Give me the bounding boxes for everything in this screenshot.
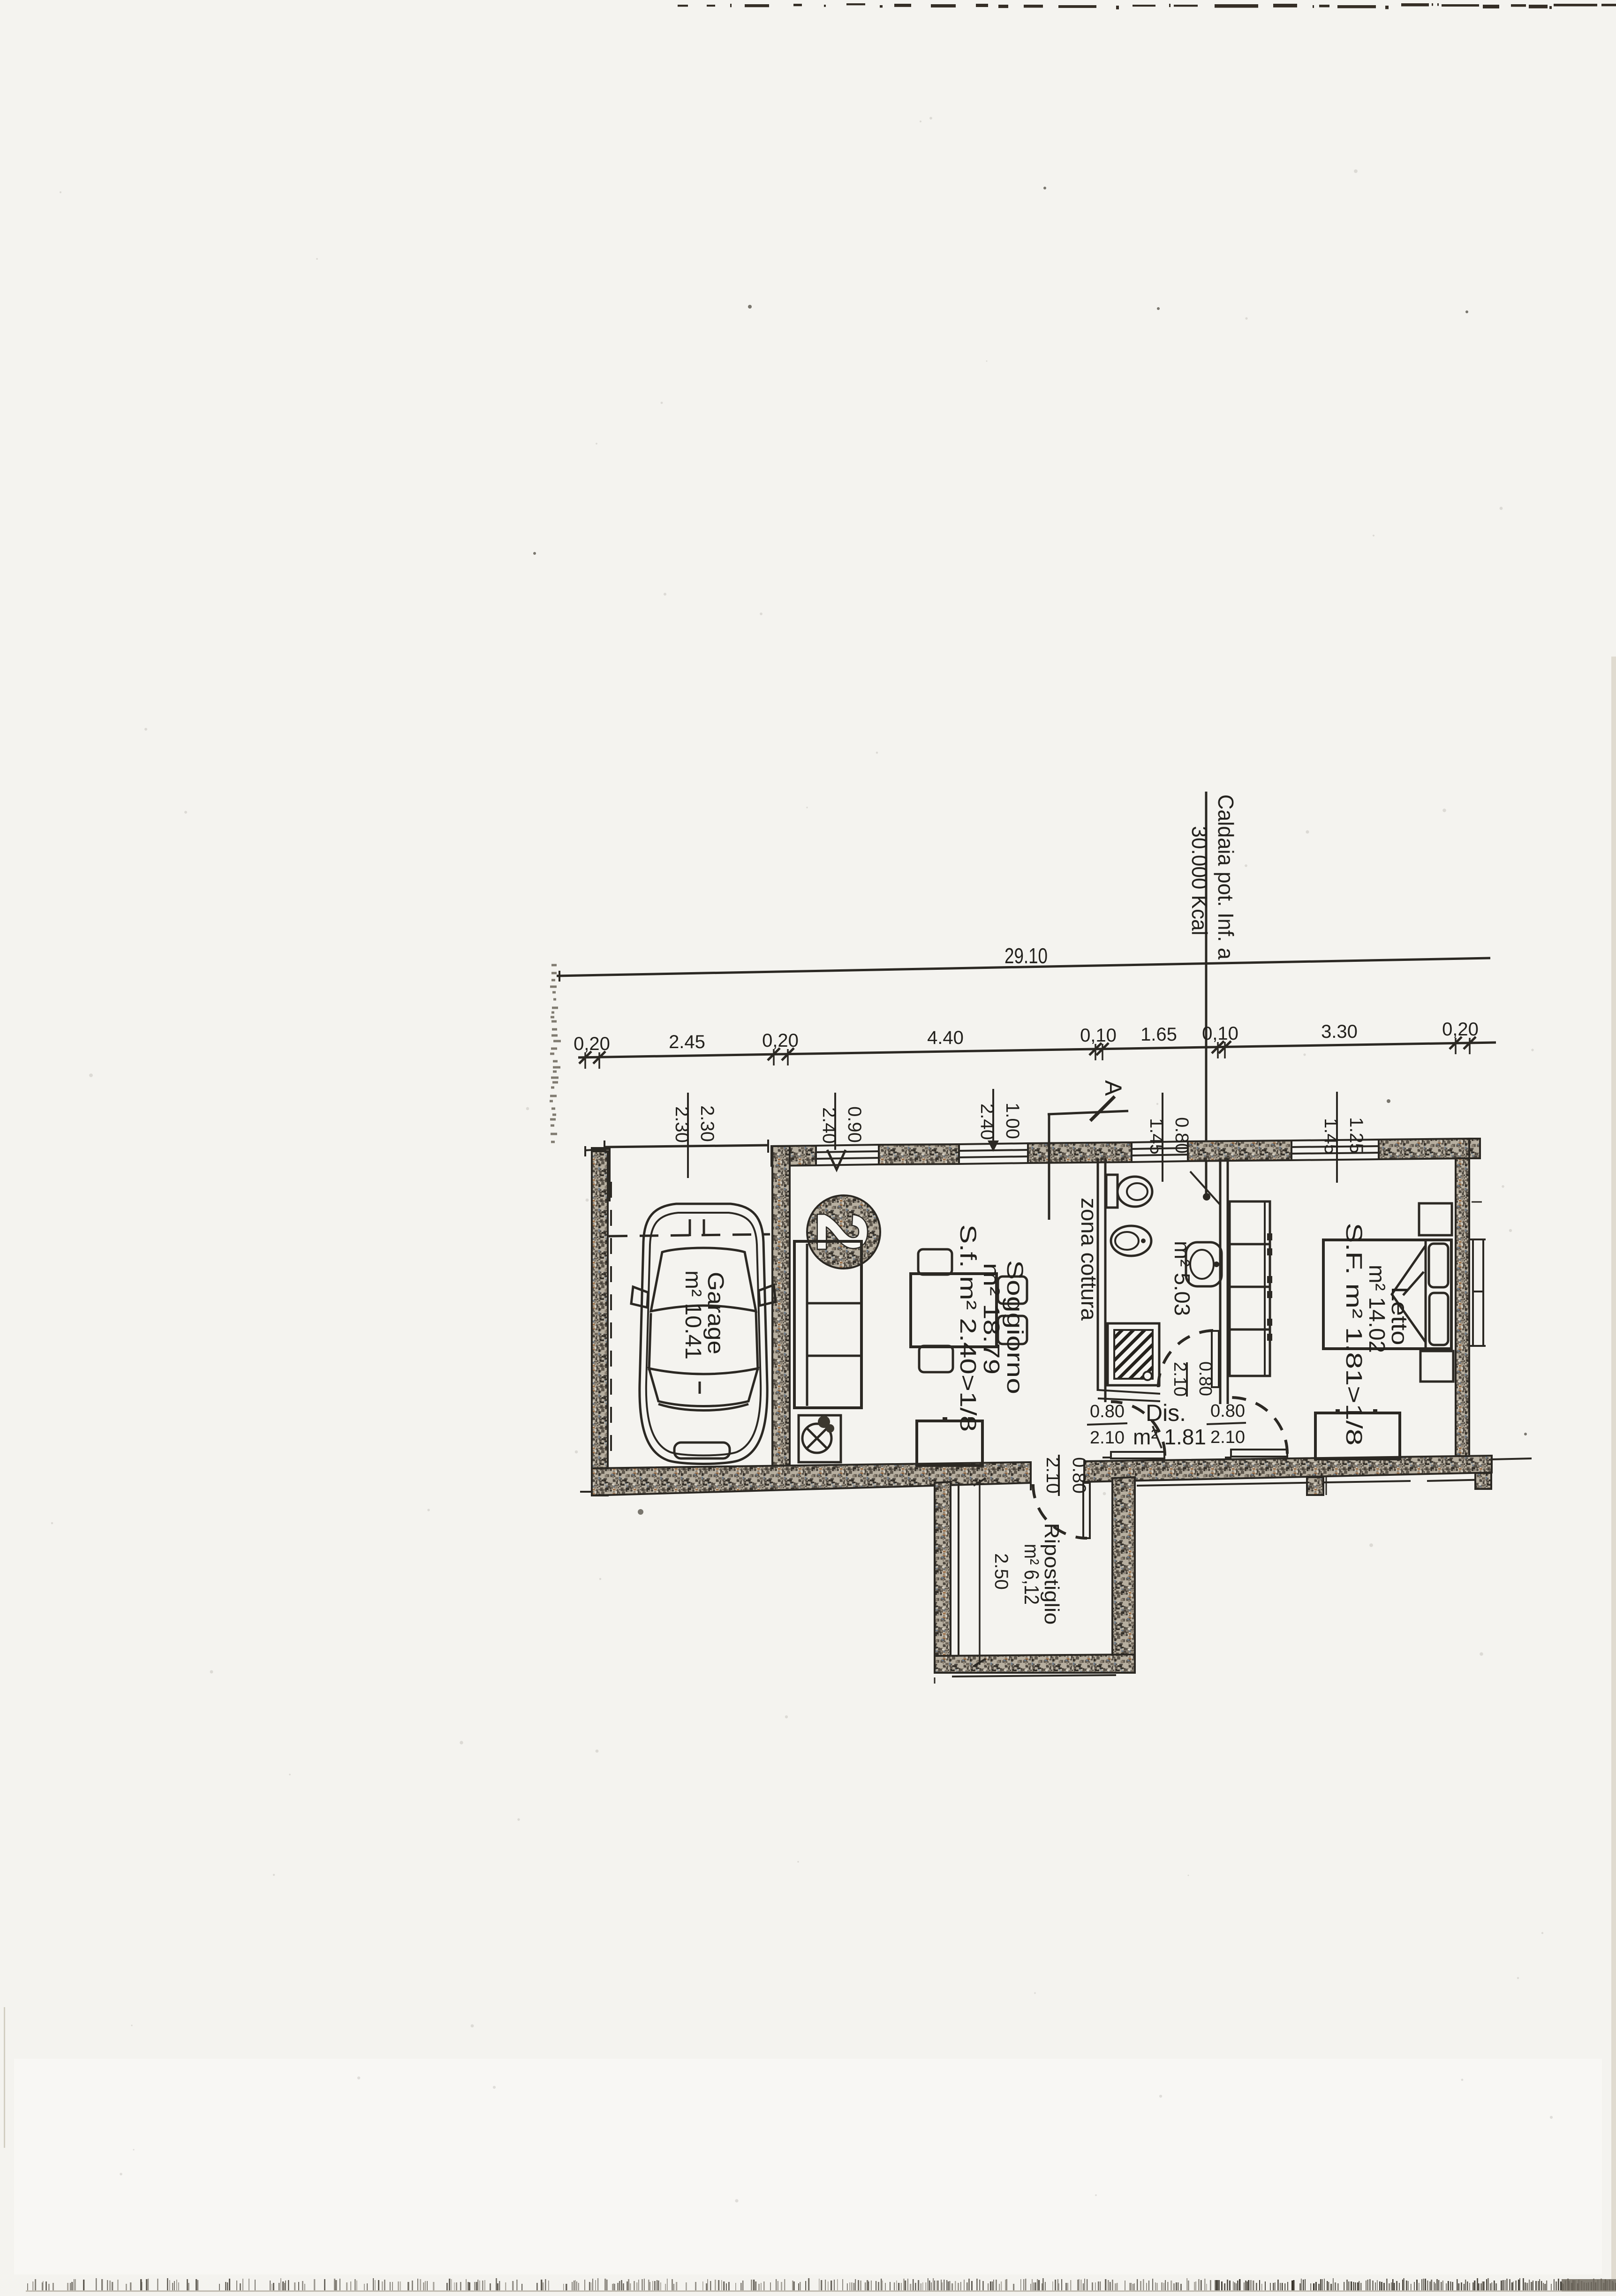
svg-text:2.40: 2.40 bbox=[819, 1107, 839, 1144]
svg-text:zona cottura: zona cottura bbox=[1077, 1198, 1102, 1321]
svg-text:m² 1.81: m² 1.81 bbox=[1133, 1425, 1206, 1449]
svg-text:2.10: 2.10 bbox=[1042, 1457, 1063, 1494]
svg-text:0.80: 0.80 bbox=[1210, 1401, 1245, 1421]
svg-text:2.10: 2.10 bbox=[1170, 1362, 1190, 1397]
svg-text:1.45: 1.45 bbox=[1146, 1118, 1167, 1155]
svg-text:0.80: 0.80 bbox=[1069, 1457, 1089, 1494]
svg-text:S.f. m² 2.40>1/8: S.f. m² 2.40>1/8 bbox=[955, 1224, 980, 1432]
svg-text:2.30: 2.30 bbox=[697, 1105, 717, 1142]
svg-text:29.10: 29.10 bbox=[1004, 944, 1048, 968]
svg-text:2.30: 2.30 bbox=[672, 1106, 692, 1143]
svg-text:0.90: 0.90 bbox=[844, 1106, 865, 1143]
svg-text:0.80: 0.80 bbox=[1171, 1117, 1192, 1154]
svg-text:2.10: 2.10 bbox=[1210, 1427, 1245, 1447]
svg-text:Caldaia pot. Inf. a: Caldaia pot. Inf. a bbox=[1214, 794, 1238, 959]
svg-text:S.F. m² 1.81>1/8: S.F. m² 1.81>1/8 bbox=[1341, 1223, 1366, 1446]
svg-text:30.000 Kcal: 30.000 Kcal bbox=[1187, 826, 1212, 936]
svg-text:0,20: 0,20 bbox=[574, 1034, 610, 1054]
svg-text:Ripostiglio: Ripostiglio bbox=[1040, 1523, 1063, 1625]
svg-text:0,10: 0,10 bbox=[1080, 1025, 1117, 1046]
svg-text:1.25: 1.25 bbox=[1346, 1117, 1367, 1154]
svg-text:0,20: 0,20 bbox=[1442, 1019, 1479, 1040]
svg-text:0,20: 0,20 bbox=[762, 1030, 799, 1051]
svg-text:1.65: 1.65 bbox=[1140, 1024, 1177, 1045]
svg-text:1.45: 1.45 bbox=[1321, 1118, 1341, 1155]
svg-text:0.80: 0.80 bbox=[1195, 1361, 1215, 1396]
svg-text:m² 6,12: m² 6,12 bbox=[1020, 1544, 1043, 1605]
svg-text:m² 14.02: m² 14.02 bbox=[1364, 1265, 1389, 1353]
svg-text:2.10: 2.10 bbox=[1090, 1428, 1125, 1448]
svg-text:Garage: Garage bbox=[703, 1272, 728, 1354]
svg-text:2.50: 2.50 bbox=[991, 1553, 1012, 1590]
svg-text:m² 18.79: m² 18.79 bbox=[979, 1263, 1004, 1375]
svg-text:m² 10.41: m² 10.41 bbox=[680, 1270, 705, 1359]
svg-text:4.40: 4.40 bbox=[927, 1027, 964, 1048]
svg-text:3.30: 3.30 bbox=[1321, 1021, 1358, 1042]
svg-text:0,10: 0,10 bbox=[1202, 1023, 1238, 1044]
svg-text:1.00: 1.00 bbox=[1002, 1103, 1023, 1139]
svg-text:Letto: Letto bbox=[1387, 1287, 1412, 1345]
svg-text:2: 2 bbox=[803, 1212, 882, 1251]
svg-text:Soggiorno: Soggiorno bbox=[1002, 1260, 1027, 1394]
svg-text:A: A bbox=[1100, 1080, 1126, 1096]
svg-text:2.40: 2.40 bbox=[977, 1103, 997, 1140]
svg-text:0.80: 0.80 bbox=[1090, 1402, 1125, 1421]
svg-text:2.45: 2.45 bbox=[669, 1032, 705, 1052]
svg-text:m² 5.03: m² 5.03 bbox=[1170, 1241, 1194, 1316]
